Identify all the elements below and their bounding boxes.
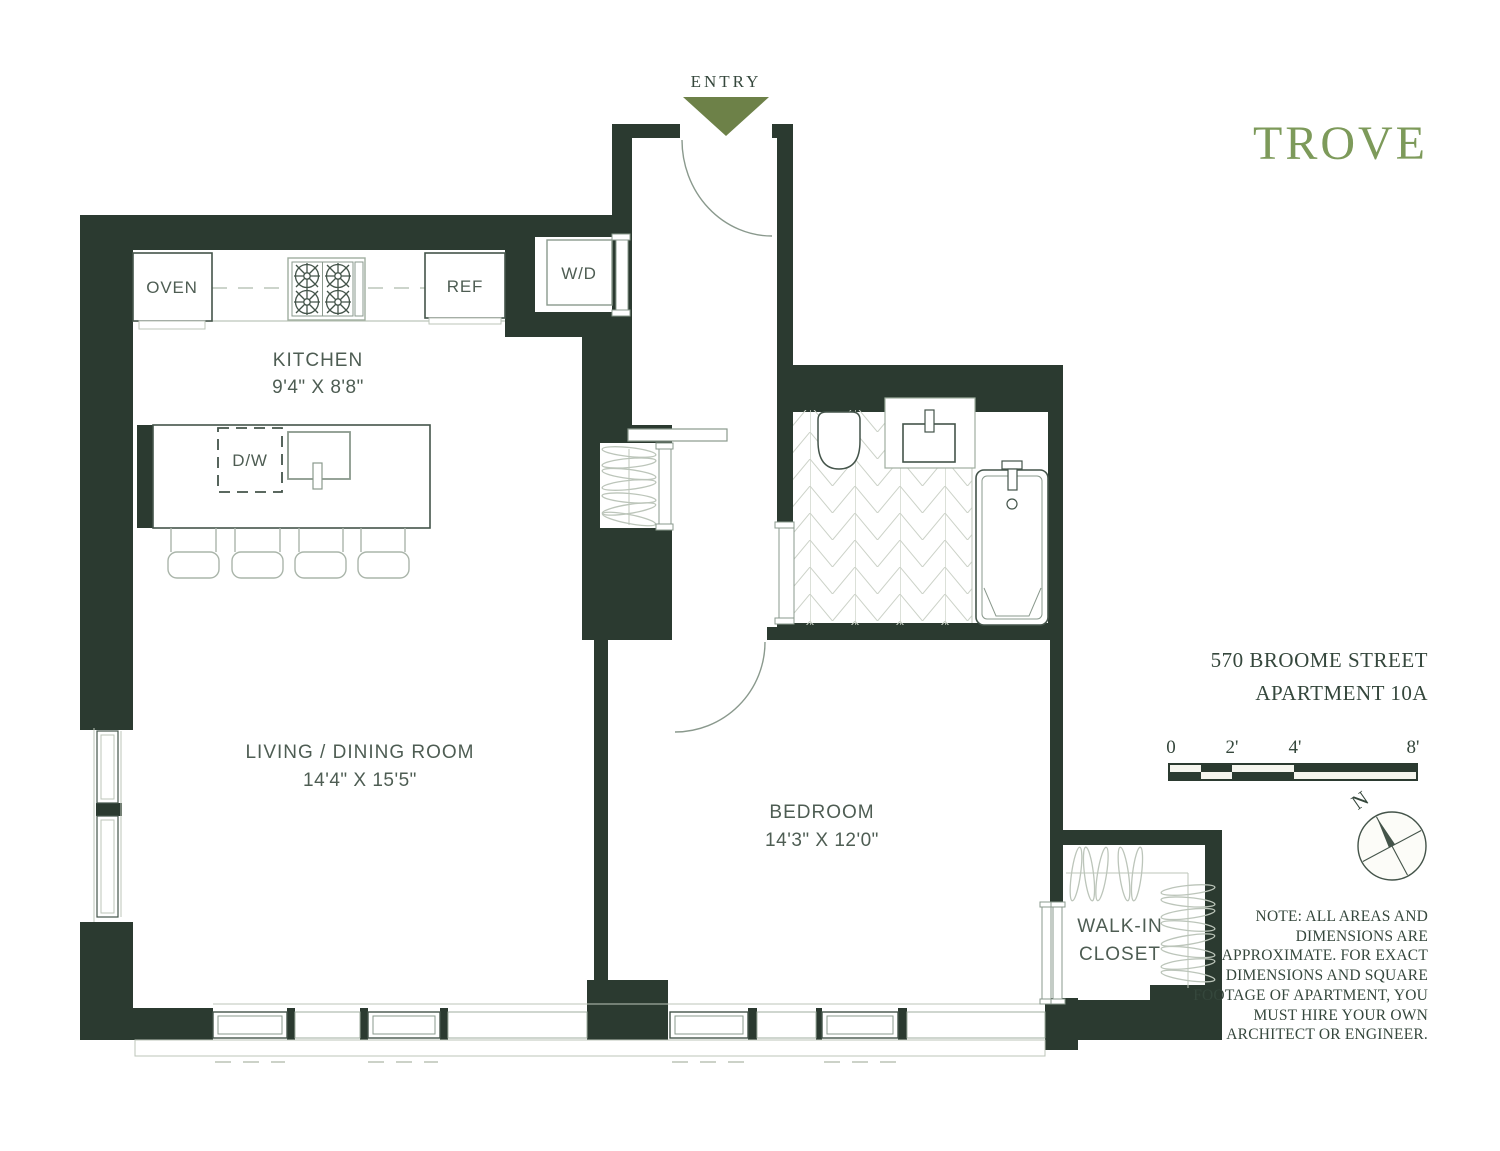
window-sill-band: [135, 1040, 1045, 1056]
bedroom-dims: 14'3" X 12'0": [765, 830, 879, 852]
living-dining-dims: 14'4" X 15'5": [303, 770, 417, 792]
wall-bottom-left: [80, 1008, 213, 1040]
dishwasher-label: D/W: [232, 451, 267, 471]
wall-hallcloset-top: [582, 425, 672, 443]
bathroom-pocket-door: [775, 522, 794, 624]
kitchen-island: [153, 425, 430, 528]
wall-bottom-pillar: [587, 980, 668, 1040]
window-stub: [360, 1008, 368, 1040]
wall-bathroom-bottom: [785, 623, 1063, 640]
wall-hall-right: [777, 138, 793, 525]
trove-logo: TROVE: [1253, 116, 1428, 171]
toilet: [818, 412, 860, 469]
entry-door-arc: [682, 140, 772, 236]
scale-tick-8ft: 8': [1407, 737, 1420, 759]
closet-door-panel: [659, 446, 671, 526]
wall-closet-top: [1050, 830, 1222, 845]
wall-bathroom-right: [1048, 412, 1063, 623]
window-stub: [440, 1008, 448, 1040]
walk-in-closet-name-line1: WALK-IN: [1077, 916, 1162, 938]
bathtub: [976, 461, 1048, 625]
compass-icon: N: [1347, 786, 1437, 891]
note-line: NOTE: ALL AREAS AND: [1168, 907, 1428, 927]
address-block: 570 BROOME STREET APARTMENT 10A: [1211, 644, 1428, 710]
window-stub: [898, 1008, 907, 1040]
vanity-sink: [903, 424, 955, 462]
scale-tick-2ft: 2': [1226, 737, 1239, 759]
note-line: ARCHITECT OR ENGINEER.: [1168, 1025, 1428, 1045]
oven-label: OVEN: [146, 278, 197, 298]
bathroom-tile-floor: [793, 410, 972, 625]
wall-hallcloset-left: [582, 443, 600, 528]
entry-label: ENTRY: [691, 72, 762, 92]
vanity-faucet-icon: [925, 410, 934, 432]
note-line: FOOTAGE OF APARTMENT, YOU: [1168, 986, 1428, 1006]
sink-faucet-icon: [313, 463, 322, 489]
wall-kitchen-top: [133, 215, 510, 250]
left-windows: [94, 728, 121, 922]
wall-below-hallcloset: [582, 528, 672, 640]
entry-arrow-icon: [683, 97, 769, 136]
wall-bedroom-left: [594, 640, 608, 1005]
note-line: APPROXIMATE. FOR EXACT: [1168, 946, 1428, 966]
living-dining-name: LIVING / DINING ROOM: [245, 742, 474, 764]
scale-tick-4ft: 4': [1289, 737, 1302, 759]
wall-closet-jamb: [1050, 845, 1063, 905]
refrigerator-label: REF: [447, 277, 483, 297]
wall-below-wd: [582, 337, 632, 425]
tub-faucet-icon: [1002, 461, 1022, 469]
wall-bedroom-right: [1050, 640, 1063, 830]
tub-drain-icon: [1007, 499, 1017, 509]
walk-in-closet-name-line2: CLOSET: [1079, 944, 1161, 966]
island-sink: [288, 432, 350, 479]
hall-closet: [602, 429, 727, 530]
wall-entry-left-lintel: [617, 124, 680, 138]
wall-left-upper: [80, 215, 133, 730]
island-end-cap: [137, 425, 153, 528]
compass-north-label: N: [1347, 786, 1373, 814]
walk-in-closet-doors: [1040, 902, 1065, 1004]
address-line1: 570 BROOME STREET: [1211, 644, 1428, 677]
stove: [288, 258, 365, 320]
window-stub: [748, 1008, 757, 1040]
note-line: DIMENSIONS AND SQUARE: [1168, 966, 1428, 986]
wall-entry-right-lintel: [772, 124, 793, 138]
wall-left-window-stub: [96, 803, 122, 816]
scale-tick-0: 0: [1166, 737, 1176, 759]
note-line: DIMENSIONS ARE: [1168, 927, 1428, 947]
wall-bathroom-top: [785, 365, 1063, 412]
wall-hall-left: [612, 124, 632, 337]
bar-stools: [168, 528, 409, 578]
floor-plan: N ENTRY OVEN REF W/D D/W KITCHEN 9'4" X …: [0, 0, 1500, 1151]
bedroom-door-arc: [675, 642, 765, 732]
scale-bar: [1168, 763, 1418, 781]
note-line: MUST HIRE YOUR OWN: [1168, 1006, 1428, 1026]
washer-dryer-label: W/D: [561, 264, 596, 284]
bedroom-name: BEDROOM: [769, 802, 874, 824]
window-stub: [816, 1008, 822, 1040]
disclaimer-note: NOTE: ALL AREAS AND DIMENSIONS ARE APPRO…: [1168, 907, 1428, 1045]
window-stub: [287, 1008, 295, 1040]
address-line2: APARTMENT 10A: [1211, 677, 1428, 710]
kitchen-name: KITCHEN: [273, 350, 363, 372]
wall-bedroom-bottom-corner: [1045, 998, 1078, 1050]
kitchen-dims: 9'4" X 8'8": [272, 377, 364, 399]
